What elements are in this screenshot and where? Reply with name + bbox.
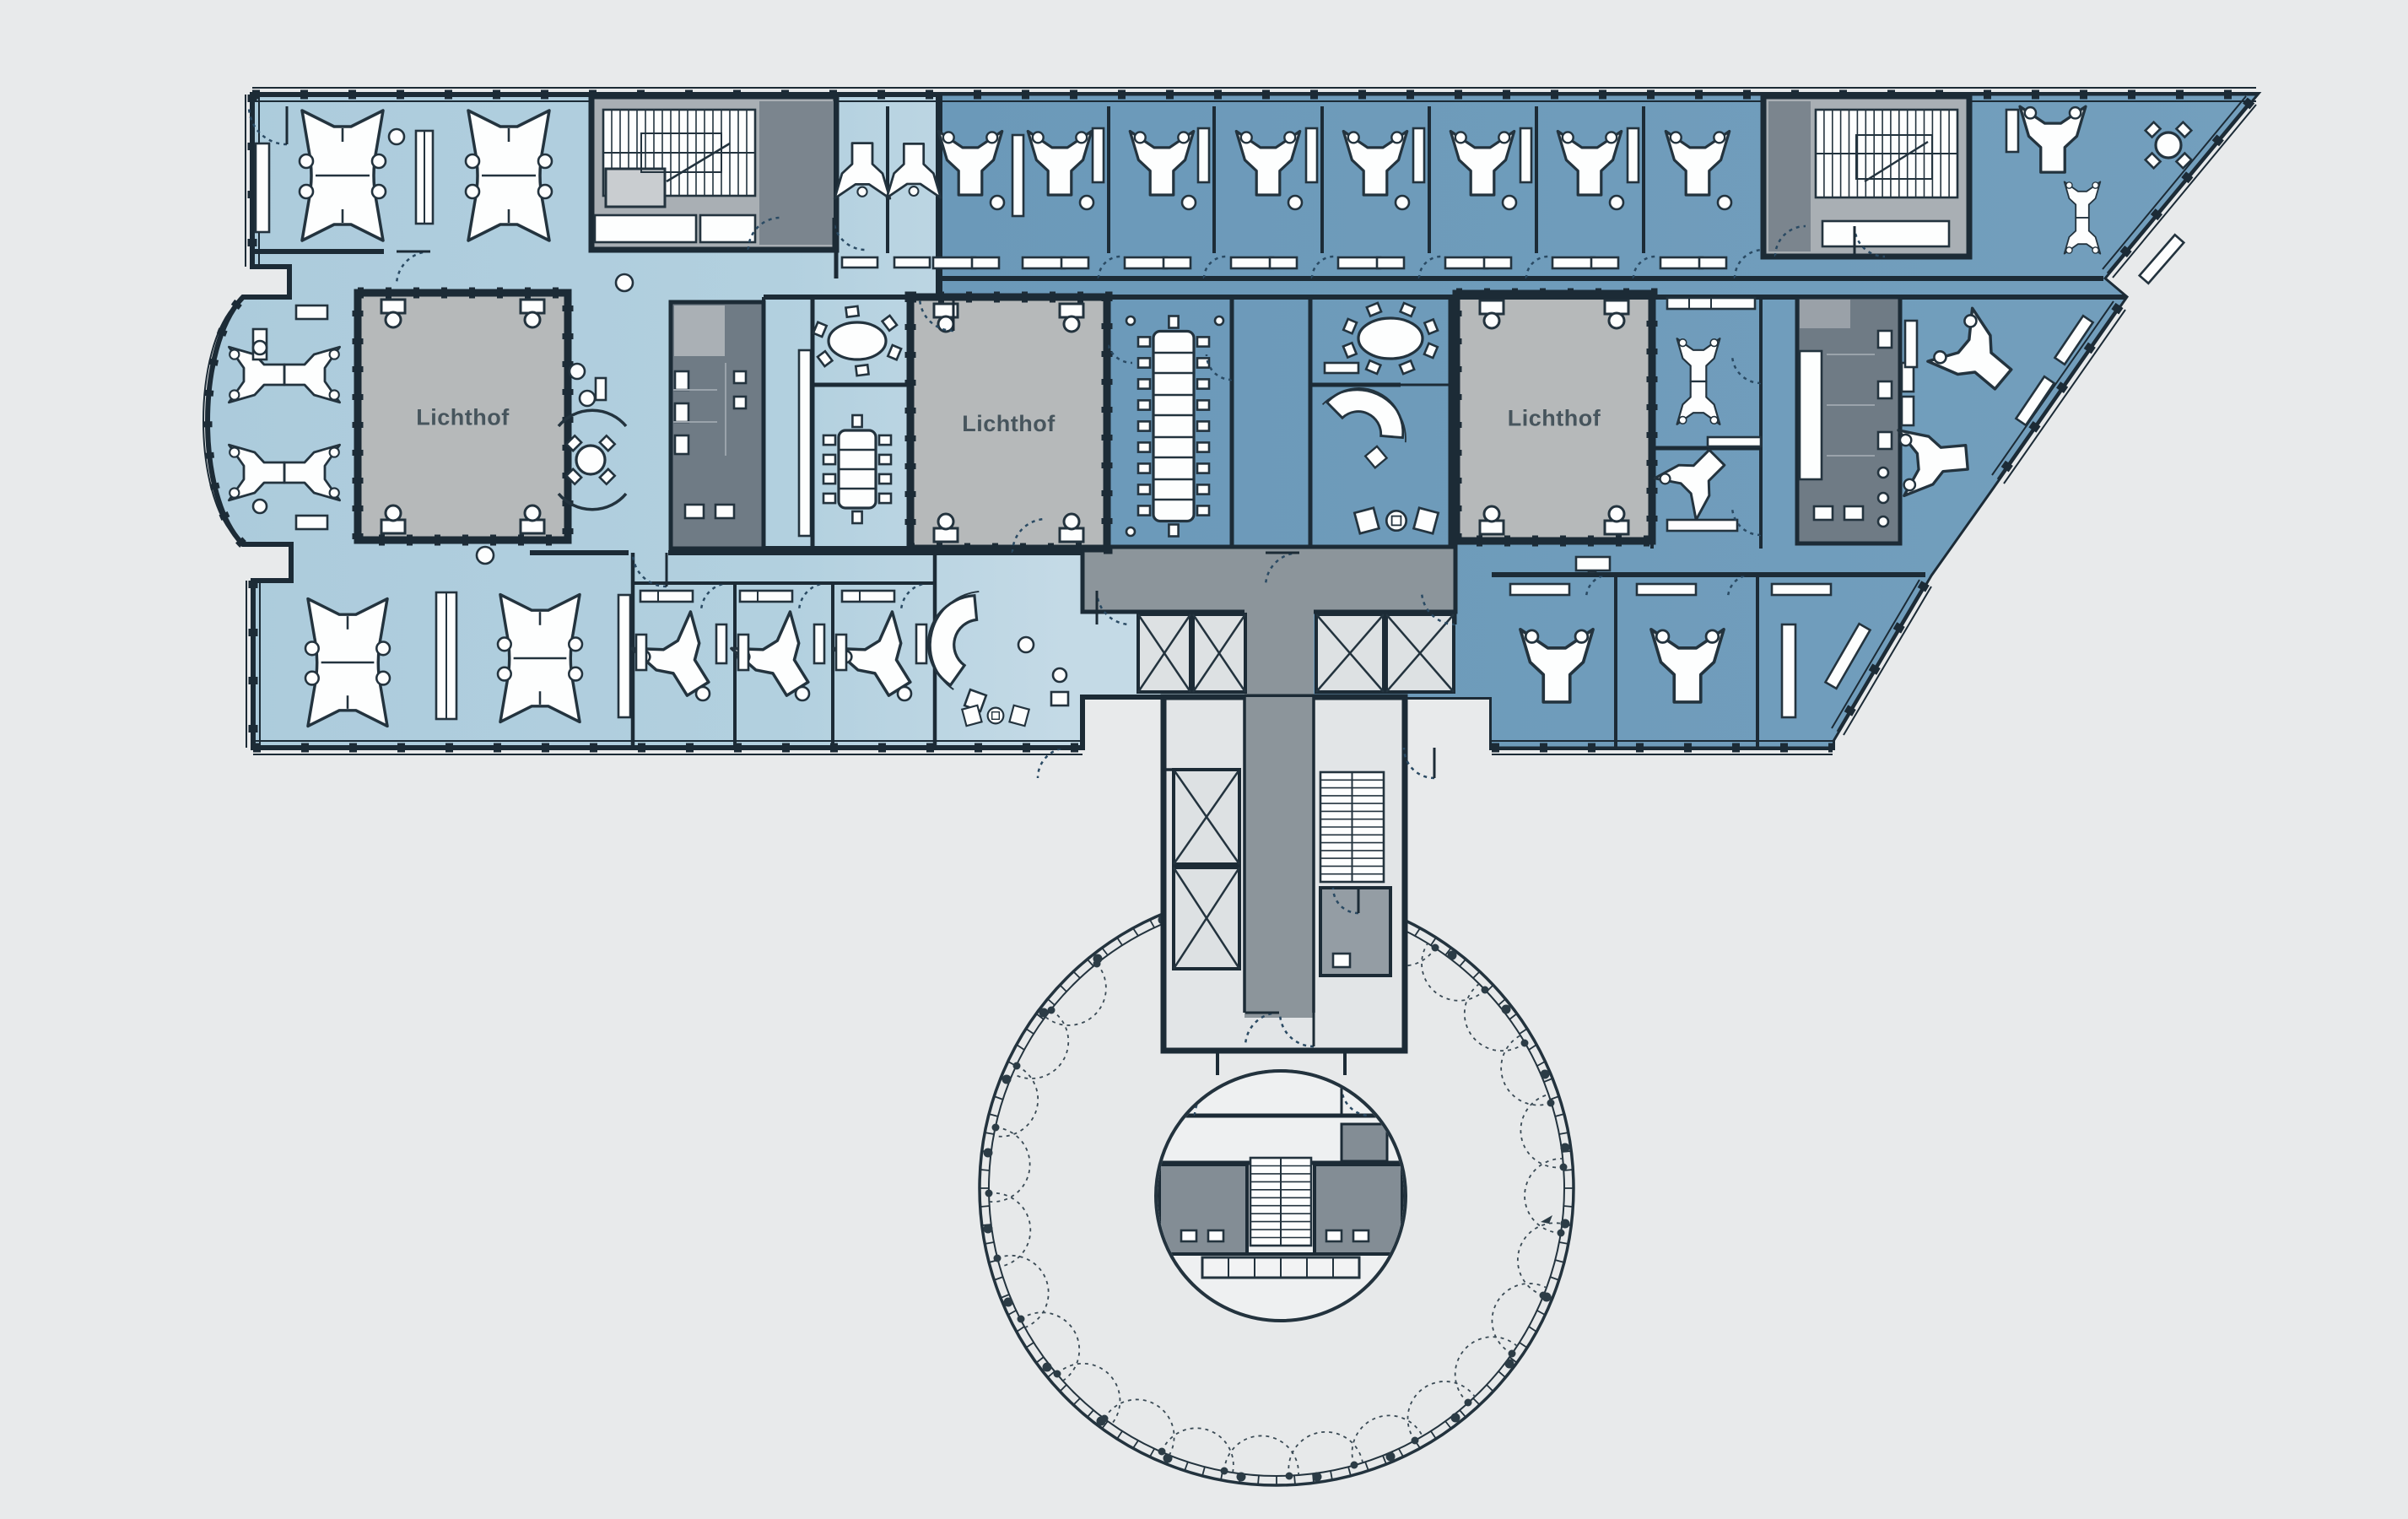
svg-text:Lichthof: Lichthof bbox=[1508, 406, 1601, 431]
svg-text:Lichthof: Lichthof bbox=[416, 405, 510, 430]
svg-text:Lichthof: Lichthof bbox=[962, 411, 1056, 436]
